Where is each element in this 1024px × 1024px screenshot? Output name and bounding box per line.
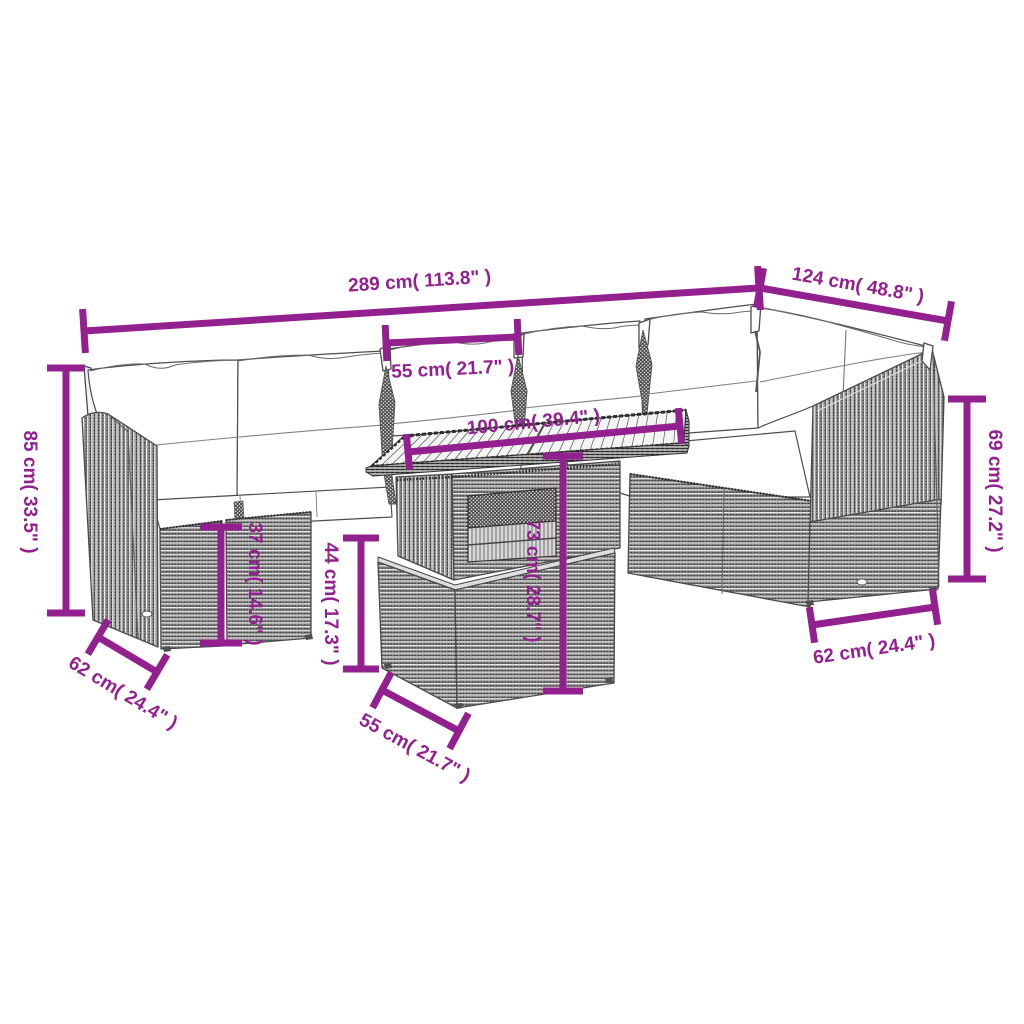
svg-text:37 cm( 14.6" ): 37 cm( 14.6" ) [244,522,265,645]
svg-text:69 cm( 27.2" ): 69 cm( 27.2" ) [984,429,1005,552]
svg-text:44 cm( 17.3" ): 44 cm( 17.3" ) [320,542,341,665]
svg-text:73 cm( 28.7" ): 73 cm( 28.7" ) [522,519,543,642]
svg-text:85 cm( 33.5" ): 85 cm( 33.5" ) [19,430,40,553]
